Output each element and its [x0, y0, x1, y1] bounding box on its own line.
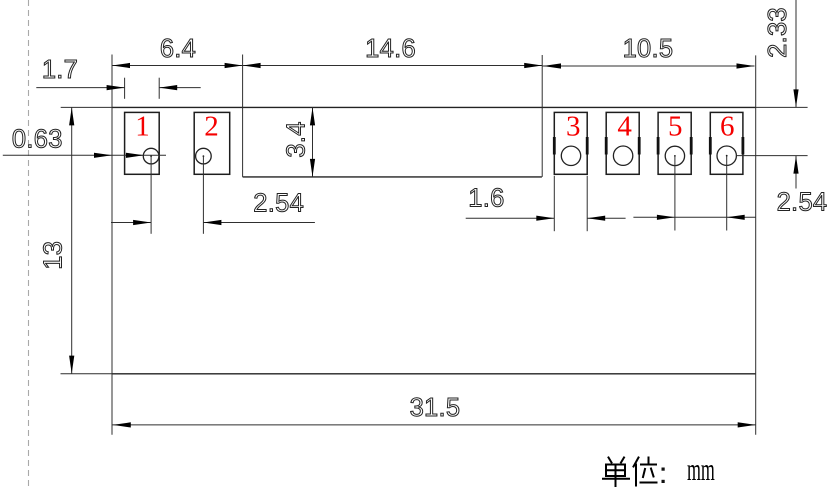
svg-text:1: 1: [135, 111, 150, 143]
svg-text:1.6: 1.6: [468, 185, 504, 213]
svg-text:2.54: 2.54: [777, 189, 828, 217]
svg-text:13: 13: [40, 241, 68, 270]
svg-text:31.5: 31.5: [410, 394, 461, 422]
svg-text:6: 6: [720, 110, 735, 142]
svg-text:0.63: 0.63: [12, 126, 63, 154]
svg-text:10.5: 10.5: [623, 35, 674, 63]
svg-text:2.33: 2.33: [764, 7, 792, 58]
svg-text:6.4: 6.4: [160, 35, 196, 63]
svg-text:3: 3: [566, 110, 581, 142]
svg-text:14.6: 14.6: [365, 35, 416, 63]
svg-text:4: 4: [617, 110, 632, 142]
svg-text:1.7: 1.7: [42, 56, 78, 84]
svg-text:5: 5: [668, 110, 683, 142]
svg-text:2: 2: [204, 111, 219, 143]
svg-text:mm: mm: [687, 452, 715, 488]
svg-text:3.4: 3.4: [283, 121, 311, 157]
svg-text:2.54: 2.54: [253, 190, 304, 218]
